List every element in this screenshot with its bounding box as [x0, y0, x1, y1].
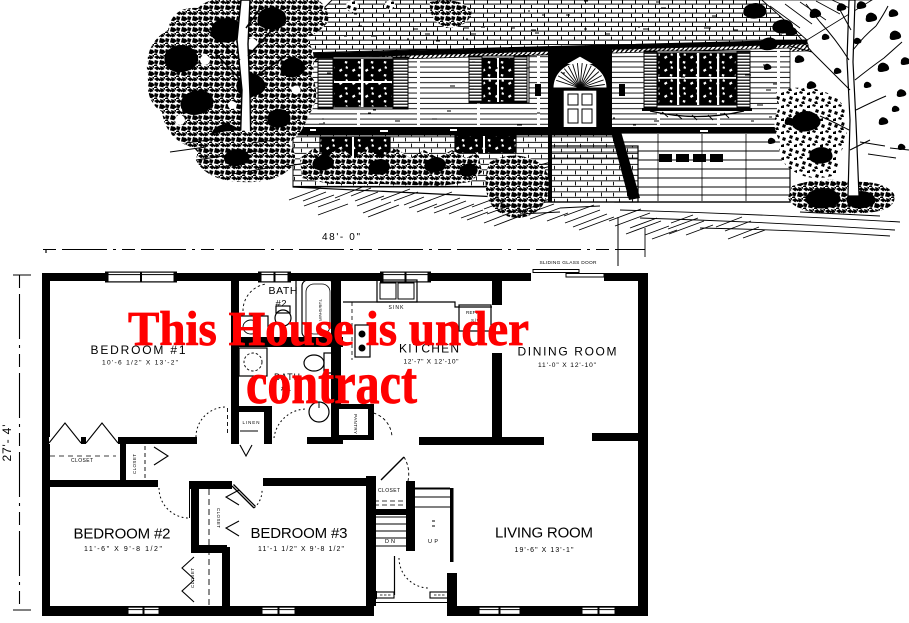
svg-text:BATH: BATH	[269, 285, 298, 297]
svg-text:CLOSET: CLOSET	[190, 568, 195, 588]
svg-text:11'-1 1/2" X 9'-8 1/2": 11'-1 1/2" X 9'-8 1/2"	[258, 546, 345, 553]
svg-text:10'-6 1/2" X 13'-2": 10'-6 1/2" X 13'-2"	[102, 360, 179, 367]
svg-text:27'- 4': 27'- 4'	[0, 425, 14, 462]
svg-text:PANTRY: PANTRY	[353, 414, 358, 434]
svg-text:DINING ROOM: DINING ROOM	[518, 345, 617, 359]
svg-text:BEDROOM #2: BEDROOM #2	[74, 526, 171, 543]
svg-text:11'-0" X 12'-10": 11'-0" X 12'-10"	[538, 362, 597, 369]
svg-text:19'-6" X 13'-1": 19'-6" X 13'-1"	[515, 547, 575, 554]
svg-text:SLIDING GLASS DOOR: SLIDING GLASS DOOR	[540, 260, 598, 266]
svg-text:LIVING ROOM: LIVING ROOM	[495, 525, 593, 542]
svg-text:CLOSET: CLOSET	[132, 454, 137, 474]
svg-text:CLOSET: CLOSET	[71, 458, 93, 464]
svg-text:BEDROOM #3: BEDROOM #3	[251, 525, 348, 542]
svg-text:This House is under: This House is under	[128, 301, 529, 356]
svg-text:contract: contract	[246, 350, 417, 416]
svg-text:CLOSET: CLOSET	[378, 488, 400, 494]
svg-text:CLOSET: CLOSET	[216, 508, 221, 528]
svg-text:LINEN: LINEN	[243, 420, 260, 425]
